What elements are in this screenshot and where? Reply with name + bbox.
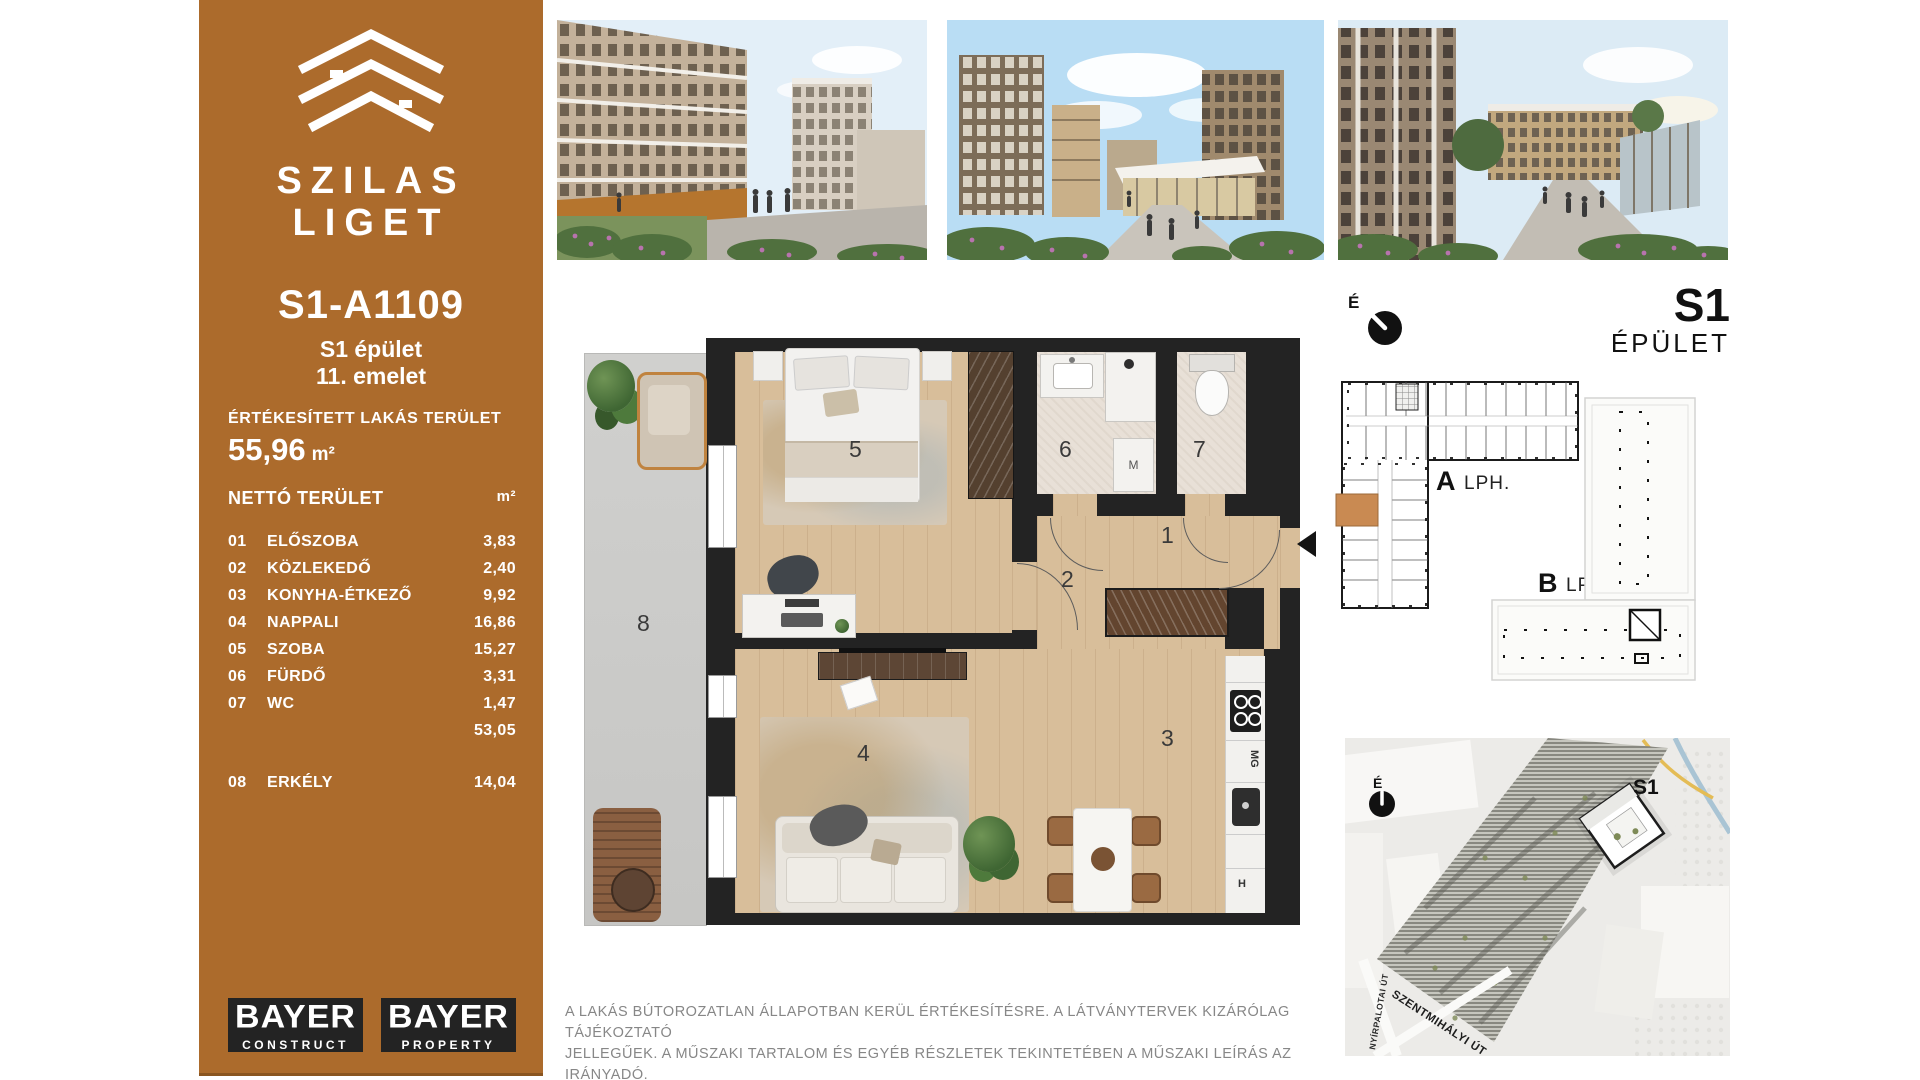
table-row: 02KÖZLEKEDŐ2,40 [228,555,516,582]
shower-drain [1124,359,1134,369]
sitemap-s1-label: S1 [1633,776,1659,799]
pillow [793,355,850,391]
nightstand-right [922,351,952,381]
kitchen-sink [1232,788,1260,826]
table-row: 07WC1,47 [228,690,516,717]
balcony-row: 08ERKÉLY14,04 [228,769,516,796]
sofa [775,816,959,913]
stair-a-label: A [1436,466,1456,496]
tv [839,648,946,653]
sink-drain [1242,802,1249,809]
render-photo-1 [557,20,927,260]
monitor [785,599,819,607]
fridge-label: H [1238,878,1246,890]
room-area-table: 01ELŐSZOBA3,83 02KÖZLEKEDŐ2,40 03KONYHA-… [228,528,516,796]
building-keyplan: A LPH. B LPH. [1330,368,1730,703]
szilas-liget-logo-icon [296,26,446,144]
room-label-3: 3 [1161,725,1174,752]
room-label-7: 7 [1193,436,1206,463]
room-label-8: 8 [637,610,650,637]
sold-area-unit: m² [312,444,335,465]
desk [742,594,856,638]
building-code: S1 [1470,284,1730,326]
counter-divider [1226,740,1265,741]
building-title: S1 ÉPÜLET [1470,284,1730,359]
sitemap-compass-label: É [1373,775,1382,791]
burner [1248,712,1262,726]
room-label-1: 1 [1161,522,1174,549]
shower [1105,352,1156,422]
table-row: 01ELŐSZOBA3,83 [228,528,516,555]
disclaimer-line1: A LAKÁS BÚTOROZATLAN ÁLLAPOTBAN KERÜL ÉR… [565,1002,1343,1044]
living-plant-icon [963,816,1015,872]
brand-line2: LIGET [199,202,543,244]
bedroom-window [708,445,737,548]
svg-text:LPH.: LPH. [1464,473,1510,494]
table-row: 06FÜRDŐ3,31 [228,663,516,690]
sold-area-value: 55,96m² [228,432,335,468]
sink-basin [1053,363,1093,389]
brand-name: SZILAS LIGET [199,160,543,244]
counter-divider [1226,834,1265,835]
bathroom-doorway [1053,494,1097,516]
sofa-back [782,823,952,853]
site-map: S1 É NYÍRPALOTAI ÚT SZENTMIHÁLYI ÚT [1345,738,1730,1056]
apartment-location: S1 épület 11. emelet [199,336,543,390]
tv-console [818,652,967,680]
burner [1248,695,1262,709]
wc-doorway [1185,494,1225,516]
bayer-construct-logo: BAYER CONSTRUCT [228,998,363,1052]
counter-divider [1226,868,1265,869]
pillow [853,356,910,391]
balcony-table [611,868,655,912]
wall-segment [1225,588,1264,649]
room-label-4: 4 [857,740,870,767]
building-line: S1 épület [199,336,543,363]
entrance-arrow-icon [1297,531,1316,557]
balcony-door-window [708,796,737,878]
disclaimer-text: A LAKÁS BÚTOROZATLAN ÁLLAPOTBAN KERÜL ÉR… [565,1002,1343,1080]
dining-chair [1131,873,1161,903]
net-area-header: NETTÓ TERÜLET m² [228,488,516,509]
apartment-floorplan: M [585,330,1300,930]
stair-b-label: B [1538,568,1558,598]
building-word: ÉPÜLET [1470,328,1730,359]
bedroom-wardrobe [968,351,1014,499]
counter-divider [1226,682,1265,683]
counter-divider [1226,782,1265,783]
nightstand-left [753,351,783,381]
dishwasher-label: MG [1232,750,1260,774]
net-area-label: NETTÓ TERÜLET [228,488,384,509]
table-row: 05SZOBA15,27 [228,636,516,663]
highlighted-unit [1336,494,1378,526]
disclaimer-line2: JELLEGŰEK. A MŰSZAKI TARTALOM ÉS EGYÉB R… [565,1044,1343,1080]
dining-table [1073,808,1132,912]
net-area-unit: m² [497,488,516,509]
developer-logos: BAYER CONSTRUCT BAYER PROPERTY [228,998,516,1052]
sofa-seat [894,857,946,903]
render-photo-2 [947,20,1324,260]
sidebar: SZILAS LIGET S1-A1109 S1 épület 11. emel… [199,0,543,1076]
balcony-armchair [637,372,707,470]
kitchen-counter: MG H [1225,656,1265,913]
sofa-seat [786,857,838,903]
apartment-id: S1-A1109 [199,283,543,328]
room-label-5: 5 [849,436,862,463]
keyboard [781,613,823,627]
desk-plant-icon [835,619,849,633]
bed [785,348,920,502]
burner [1234,695,1248,709]
room-label-6: 6 [1059,436,1072,463]
washing-machine: M [1113,438,1154,492]
hall-closet [1105,588,1229,637]
bed-foot [785,477,918,502]
chair-cushion [648,385,690,435]
balcony-plant-icon [587,360,635,412]
brochure-page: SZILAS LIGET S1-A1109 S1 épület 11. emel… [0,0,1920,1080]
floor-line: 11. emelet [199,363,543,390]
faucet [1069,357,1075,363]
bathroom-sink [1040,354,1104,398]
subtotal-row: 53,05 [228,717,516,744]
keyplan-compass-icon: É [1340,286,1430,356]
table-centerpiece [1091,847,1115,871]
sofa-seat [840,857,892,903]
table-row: 03KONYHA-ÉTKEZŐ9,92 [228,582,516,609]
washer-label: M [1129,458,1139,472]
table-row: 04NAPPALI16,86 [228,609,516,636]
keyplan-compass-label: É [1348,293,1359,312]
sold-area-number: 55,96 [228,432,306,467]
render-photo-3 [1338,20,1728,260]
living-window-small [708,675,737,718]
cushion [822,389,859,417]
brand-line1: SZILAS [199,160,543,202]
burner [1234,712,1248,726]
room-label-2: 2 [1061,566,1074,593]
bayer-property-logo: BAYER PROPERTY [381,998,516,1052]
dining-chair [1131,816,1161,846]
toilet-bowl [1195,370,1229,416]
sold-area-label: ÉRTÉKESÍTETT LAKÁS TERÜLET [228,410,518,428]
stove [1230,690,1261,732]
